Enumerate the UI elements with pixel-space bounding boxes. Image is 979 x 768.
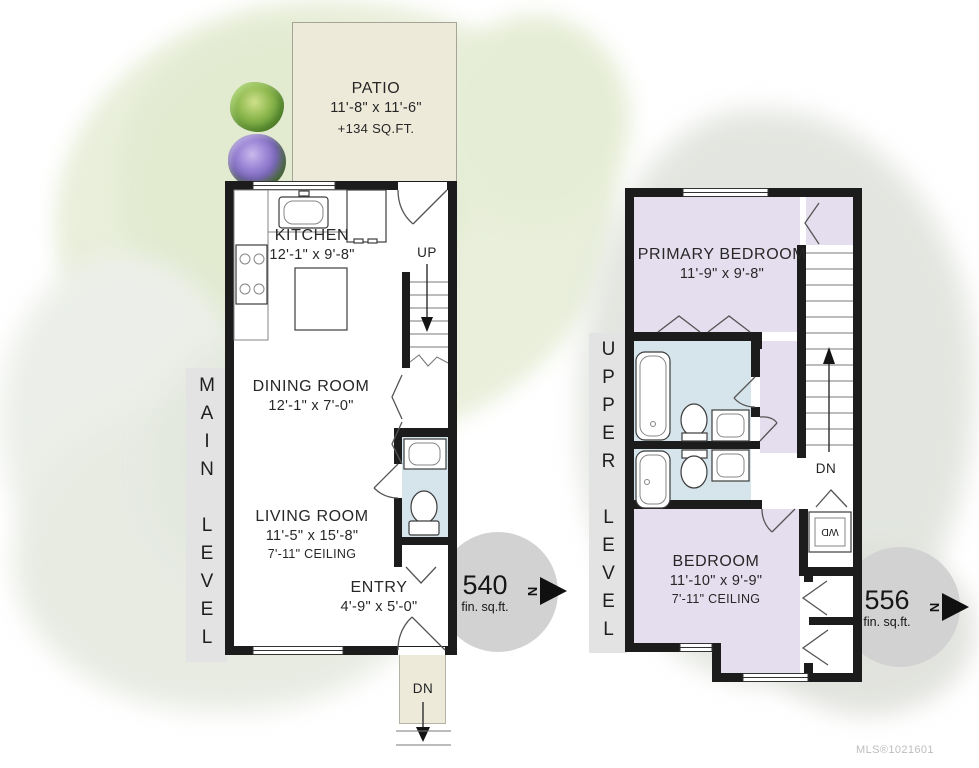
shrub-icon — [230, 82, 284, 132]
kitchen-label: KITCHEN 12'-1" x 9'-8" — [269, 227, 354, 263]
room-name: BEDROOM — [670, 553, 763, 571]
upper-north-indicator: N — [930, 593, 969, 621]
main-level-banner-text: MAIN LEVEL — [196, 375, 218, 655]
room-dims: 4'-9" x 5'-0" — [341, 599, 418, 615]
upper-level-area-value: 556 — [864, 585, 909, 616]
flower-shrub-icon — [228, 134, 286, 188]
north-letter: N — [927, 602, 942, 611]
main-level-area-value: 540 — [462, 570, 507, 601]
room-ceiling: 7'-11" CEILING — [670, 592, 763, 606]
living-room-label: LIVING ROOM 11'-5" x 15'-8" 7'-11" CEILI… — [255, 508, 368, 561]
washer-dryer-label: WD — [821, 526, 839, 538]
room-name: KITCHEN — [269, 227, 354, 245]
bedroom-label: BEDROOM 11'-10" x 9'-9" 7'-11" CEILING — [670, 553, 763, 606]
room-dims: 11'-9" x 9'-8" — [638, 266, 806, 282]
stairs-down-label: DN — [413, 681, 434, 696]
north-arrow-icon — [942, 593, 969, 621]
main-level-banner: MAIN LEVEL — [186, 368, 227, 662]
room-name: PRIMARY BEDROOM — [638, 246, 806, 264]
room-name: ENTRY — [341, 579, 418, 597]
room-dims: 12'-1" x 9'-8" — [269, 247, 354, 263]
patio-label: PATIO 11'-8" x 11'-6" +134 SQ.FT. — [330, 80, 422, 136]
stairs-down-label: DN — [816, 461, 837, 476]
powder-sink-icon — [404, 439, 446, 469]
room-dims: 11'-5" x 15'-8" — [255, 528, 368, 544]
room-ceiling: 7'-11" CEILING — [255, 547, 368, 561]
room-dims: 11'-8" x 11'-6" — [330, 100, 422, 116]
dining-room-label: DINING ROOM 12'-1" x 7'-0" — [253, 378, 370, 414]
watercolor-blob — [440, 15, 630, 225]
room-area: +134 SQ.FT. — [330, 121, 422, 136]
mls-watermark: MLS®1021601 — [856, 744, 934, 756]
main-north-indicator: N — [528, 577, 567, 605]
room-dims: 12'-1" x 7'-0" — [253, 398, 370, 414]
upper-level-banner-text: UPPER LEVEL — [597, 339, 619, 647]
floorplan-page: { "colors": { "wall": "#1c1c1c", "patio_… — [0, 0, 979, 768]
primary-bedroom-label: PRIMARY BEDROOM 11'-9" x 9'-8" — [638, 246, 806, 282]
room-name: LIVING ROOM — [255, 508, 368, 526]
upper-level-area-unit: fin. sq.ft. — [863, 615, 910, 629]
main-level-area-unit: fin. sq.ft. — [461, 600, 508, 614]
stairs-up-label: UP — [417, 245, 437, 260]
room-dims: 11'-10" x 9'-9" — [670, 573, 763, 589]
upper-level-banner: UPPER LEVEL — [589, 333, 627, 653]
room-name: DINING ROOM — [253, 378, 370, 396]
north-letter: N — [525, 586, 540, 595]
north-arrow-icon — [540, 577, 567, 605]
room-name: PATIO — [330, 80, 422, 98]
entry-label: ENTRY 4'-9" x 5'-0" — [341, 579, 418, 615]
